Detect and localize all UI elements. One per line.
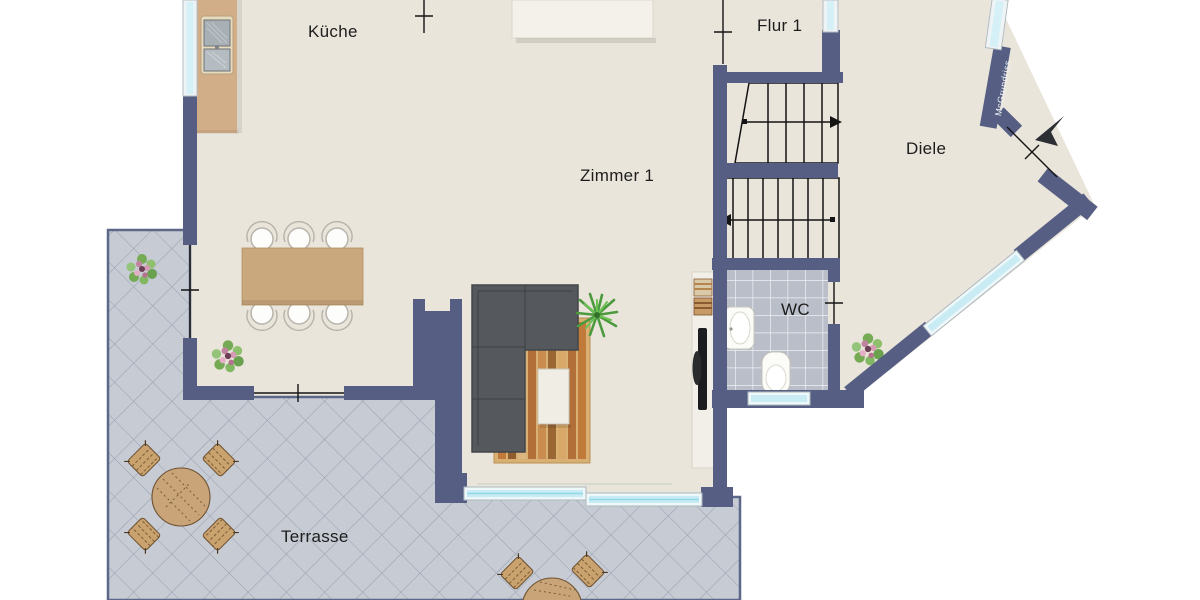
- tv-lowboard: [692, 272, 714, 468]
- floorplan-drawing: [0, 0, 1200, 600]
- kitchen-island: [512, 0, 656, 43]
- wc-room: [723, 270, 828, 397]
- floorplan-canvas: Küche Flur 1 Zimmer 1 Diele WC Terrasse …: [0, 0, 1200, 600]
- wall-flur-east: [822, 30, 840, 77]
- wall-wc-top: [712, 258, 840, 270]
- dining-table: [242, 248, 363, 305]
- toilet: [762, 352, 790, 394]
- wall-left-upper: [183, 95, 197, 245]
- window-flur-north: [823, 0, 838, 32]
- window-living-south-2: [586, 493, 702, 506]
- wall-wc-east-upper: [828, 258, 840, 282]
- wall-wc-east-lower: [828, 324, 840, 396]
- wall-divider-prong-right: [450, 299, 462, 313]
- room-label-terrasse: Terrasse: [281, 527, 349, 547]
- room-label-diele: Diele: [906, 139, 946, 159]
- wall-stairs-mid: [717, 163, 838, 178]
- room-label-kueche: Küche: [308, 22, 358, 42]
- wall-zimmer-east: [713, 65, 727, 489]
- wall-corner-se-living: [701, 487, 733, 507]
- wall-south-dining-1: [183, 386, 254, 400]
- window-living-south-1: [464, 487, 586, 500]
- coffee-table: [538, 369, 571, 428]
- window-wc-south: [748, 392, 810, 405]
- kitchen-counter: [197, 0, 242, 134]
- kitchen-sink: [201, 16, 233, 74]
- room-label-flur1: Flur 1: [757, 16, 802, 36]
- wall-left-lower: [183, 338, 197, 388]
- wall-corner-sw: [435, 473, 467, 503]
- room-label-wc: WC: [781, 300, 810, 320]
- window-kitchen-west: [183, 0, 197, 96]
- wc-sink: [724, 307, 754, 349]
- wall-divider-body: [413, 311, 462, 388]
- wall-divider-prong-left: [413, 299, 425, 313]
- room-label-zimmer1: Zimmer 1: [580, 166, 654, 186]
- dining-set: [242, 222, 363, 331]
